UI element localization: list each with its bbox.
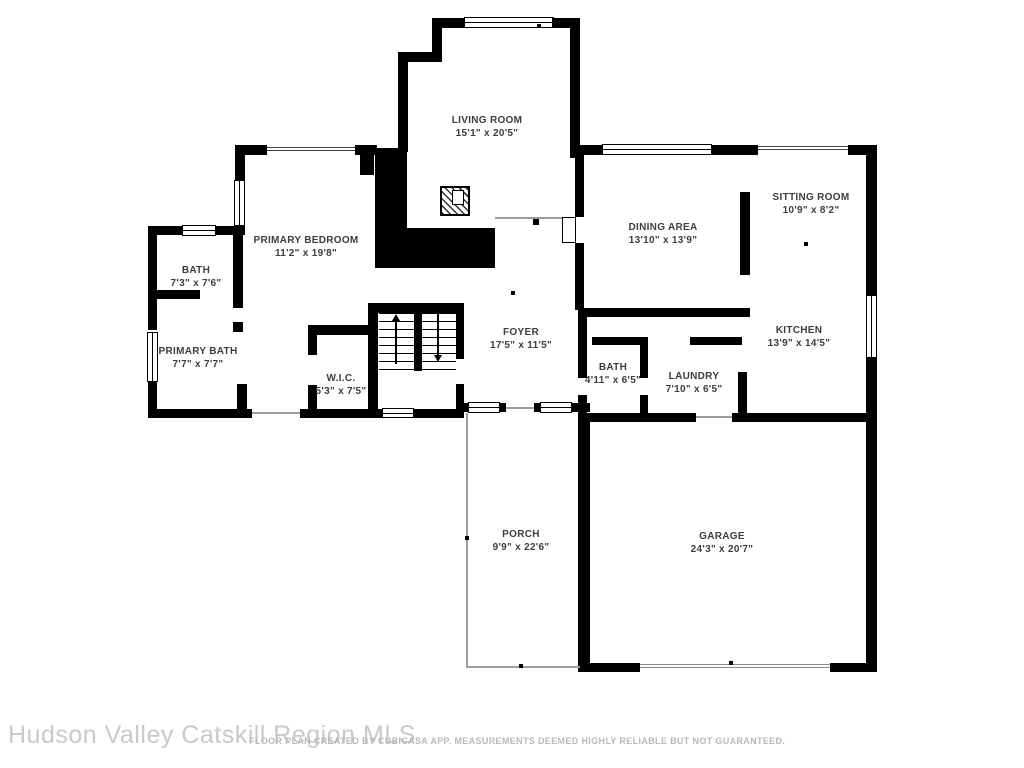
wall-segment: [578, 145, 602, 155]
cased-opening: [562, 217, 576, 243]
wall-segment: [578, 663, 640, 672]
wall-segment: [308, 325, 377, 335]
room-label-bath-lower: BATH 4'11" x 6'5": [585, 361, 641, 387]
room-name: PORCH: [493, 528, 550, 541]
room-name: BATH: [171, 264, 222, 277]
dimension-tick: [511, 291, 515, 295]
wall-segment: [740, 192, 750, 275]
garage-door-line: [640, 664, 830, 668]
wall-segment: [712, 145, 758, 155]
wall-segment: [578, 308, 750, 317]
opening-line: [252, 412, 300, 414]
wall-segment: [578, 413, 590, 668]
room-dimensions: 11'2" x 19'8": [253, 247, 358, 260]
room-dimensions: 24'3" x 20'7": [691, 543, 754, 556]
room-label-living-room: LIVING ROOM 15'1" x 20'5": [452, 114, 523, 140]
window: [267, 147, 355, 151]
room-label-sitting-room: SITTING ROOM 10'9" x 8'2": [773, 191, 850, 217]
room-label-bath-upper: BATH 7'3" x 7'6": [171, 264, 222, 290]
wall-segment: [570, 18, 580, 158]
dimension-tick: [519, 664, 523, 668]
room-name: FOYER: [490, 326, 552, 339]
room-name: BATH: [585, 361, 641, 374]
fireplace-notch: [452, 190, 464, 205]
wall-segment: [690, 337, 742, 345]
floor-plan: LIVING ROOM 15'1" x 20'5" PRIMARY BEDROO…: [0, 0, 1024, 768]
wall-segment: [640, 345, 648, 378]
wall-segment: [368, 409, 382, 418]
wall-segment: [456, 403, 468, 412]
room-name: LIVING ROOM: [452, 114, 523, 127]
wall-segment: [830, 663, 876, 672]
room-label-laundry: LAUNDRY 7'10" x 6'5": [666, 370, 723, 396]
room-dimensions: 17'5" x 11'5": [490, 339, 552, 352]
room-name: LAUNDRY: [666, 370, 723, 383]
wall-segment: [640, 395, 648, 413]
room-label-primary-bath: PRIMARY BATH 7'7" x 7'7": [159, 345, 238, 371]
room-label-garage: GARAGE 24'3" x 20'7": [691, 530, 754, 556]
room-name: KITCHEN: [768, 324, 831, 337]
porch-edge: [466, 666, 580, 668]
dimension-tick: [729, 661, 733, 665]
wall-segment: [368, 303, 464, 313]
stairs-down-arrow: [437, 308, 439, 356]
wall-segment: [360, 148, 374, 175]
wall-segment: [233, 322, 243, 332]
room-dimensions: 13'10" x 13'9": [628, 234, 697, 247]
window-sidelight: [468, 402, 500, 413]
room-label-foyer: FOYER 17'5" x 11'5": [490, 326, 552, 352]
room-dimensions: 9'9" x 22'6": [493, 541, 550, 554]
wall-segment: [866, 145, 877, 295]
window: [147, 332, 158, 382]
wall-segment: [592, 337, 648, 345]
room-label-kitchen: KITCHEN 13'9" x 14'5": [768, 324, 831, 350]
dimension-tick: [537, 24, 541, 28]
stairs-down-arrowhead: [434, 355, 442, 362]
room-dimensions: 4'11" x 6'5": [585, 374, 641, 387]
wall-segment: [237, 384, 247, 409]
wall-segment: [308, 325, 317, 355]
wall-segment: [148, 409, 252, 418]
wall-segment: [575, 243, 584, 310]
room-dimensions: 5'3" x 7'5": [316, 385, 367, 398]
wall-segment: [148, 226, 157, 330]
room-dimensions: 7'3" x 7'6": [171, 277, 222, 290]
wall-segment: [738, 372, 747, 413]
wall-segment: [414, 313, 422, 371]
room-name: GARAGE: [691, 530, 754, 543]
room-label-dining-area: DINING AREA 13'10" x 13'9": [628, 221, 697, 247]
room-dimensions: 7'7" x 7'7": [159, 358, 238, 371]
room-name: PRIMARY BATH: [159, 345, 238, 358]
wall-segment: [368, 303, 378, 418]
door-opening-line: [696, 416, 732, 418]
room-label-primary-bedroom: PRIMARY BEDROOM 11'2" x 19'8": [253, 234, 358, 260]
wall-segment: [235, 145, 245, 180]
opening-line: [758, 146, 850, 150]
room-name: SITTING ROOM: [773, 191, 850, 204]
room-name: W.I.C.: [316, 372, 367, 385]
window: [382, 408, 414, 418]
window: [182, 225, 216, 236]
wall-segment: [233, 226, 243, 308]
door-tick: [533, 219, 539, 225]
wall-mass: [375, 228, 495, 268]
wall-segment: [148, 290, 200, 299]
wall-segment: [578, 413, 696, 422]
cubicasa-disclaimer: FLOOR PLAN CREATED BY CUBICASA APP. MEAS…: [249, 736, 785, 746]
room-label-wic: W.I.C. 5'3" x 7'5": [316, 372, 367, 398]
stairs-up-arrow: [395, 320, 397, 364]
front-door-opening: [506, 407, 534, 409]
dimension-tick: [465, 536, 469, 540]
window: [602, 144, 712, 155]
dimension-tick: [804, 242, 808, 246]
wall-segment: [398, 52, 408, 152]
room-name: DINING AREA: [628, 221, 697, 234]
porch-edge: [466, 413, 468, 668]
room-label-porch: PORCH 9'9" x 22'6": [493, 528, 550, 554]
stairs-down-flight: [422, 313, 456, 371]
room-dimensions: 13'9" x 14'5": [768, 337, 831, 350]
window: [866, 295, 877, 358]
room-dimensions: 7'10" x 6'5": [666, 383, 723, 396]
window-sidelight: [540, 402, 572, 413]
wall-segment: [732, 413, 876, 422]
room-dimensions: 15'1" x 20'5": [452, 127, 523, 140]
wall-segment: [578, 395, 587, 413]
room-dimensions: 10'9" x 8'2": [773, 204, 850, 217]
dimension-tick: [869, 542, 873, 546]
stairs-up-arrowhead: [392, 314, 400, 321]
room-name: PRIMARY BEDROOM: [253, 234, 358, 247]
wall-segment: [575, 152, 584, 217]
wall-segment: [456, 303, 464, 359]
window: [234, 180, 245, 226]
